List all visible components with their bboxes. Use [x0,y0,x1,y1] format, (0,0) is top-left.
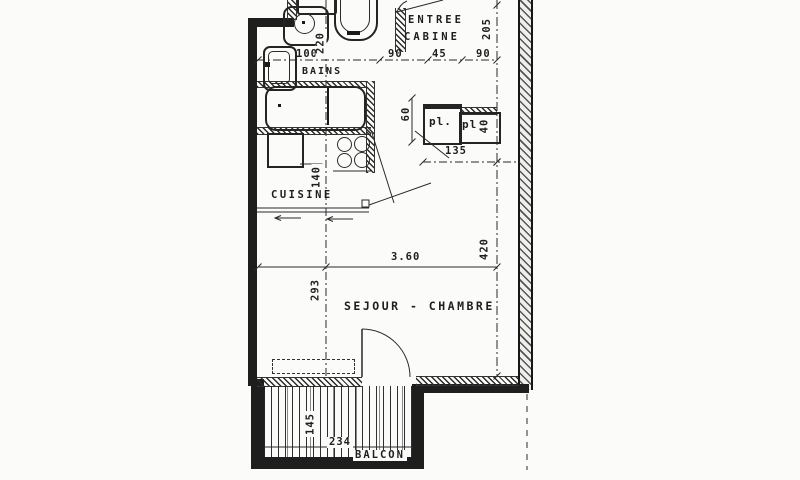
closet-label-left: pl. [429,115,452,128]
room-label-sejour-chambre: SEJOUR - CHAMBRE [344,299,495,313]
dim-placard-total: 135 [445,145,467,157]
plan-linework [0,0,800,480]
dim-wc-depth: 220 [316,30,327,56]
dim-balcon-width: 234 [327,437,353,448]
dim-placard-depth: 60 [400,107,412,122]
dim-entree-seg-a: 90 [388,48,403,60]
dim-sejour-depth: 420 [480,236,491,262]
room-label-bains: BAINS [302,66,342,77]
dim-placard-right: 40 [480,117,491,136]
room-label-balcon: BALCON [353,450,407,461]
dim-balcon-depth: 145 [306,411,317,437]
room-label-cuisine: CUISINE [271,189,333,201]
room-label-entree: ENTREE [408,14,464,26]
floor-plan: ENTREE CABINE BAINS CUISINE SEJOUR - CHA… [0,0,800,480]
dim-sejour-axis: 293 [311,277,322,303]
room-label-cabine: CABINE [404,31,460,43]
dim-cuisine-width: 140 [312,164,323,190]
dim-entree-seg-c: 90 [476,48,491,60]
dim-entree-seg-b: 45 [432,48,447,60]
dim-cabine-depth: 205 [481,18,493,40]
dim-sejour-width: 3.60 [389,252,422,263]
